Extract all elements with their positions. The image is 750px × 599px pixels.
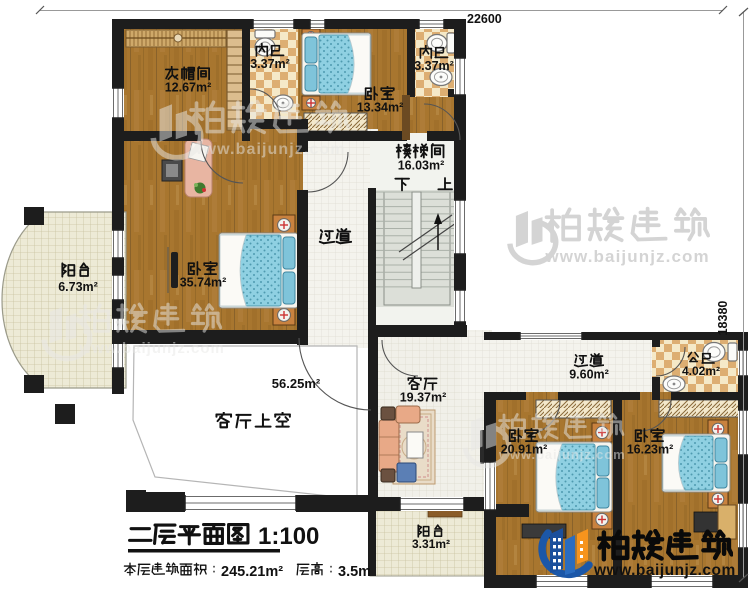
svg-text:www.baijunjz.com: www.baijunjz.com xyxy=(544,247,709,266)
svg-text:35.74m²: 35.74m² xyxy=(180,275,227,289)
svg-text:12.67m²: 12.67m² xyxy=(165,80,212,94)
svg-text:3.31m²: 3.31m² xyxy=(412,537,450,551)
svg-text:www.baijunjz.com: www.baijunjz.com xyxy=(78,340,224,357)
svg-text:16.03m²: 16.03m² xyxy=(398,158,445,172)
svg-text:19.37m²: 19.37m² xyxy=(400,390,447,404)
svg-text:www.baijunjz.com: www.baijunjz.com xyxy=(189,141,346,158)
svg-text:245.21m²: 245.21m² xyxy=(221,564,283,580)
svg-text:3.37m²: 3.37m² xyxy=(414,59,454,73)
svg-text:www.baijunjz.com: www.baijunjz.com xyxy=(593,562,736,579)
svg-text:1:100: 1:100 xyxy=(258,523,319,550)
svg-text:13.34m²: 13.34m² xyxy=(357,100,404,114)
svg-text:4.02m²: 4.02m² xyxy=(682,364,720,378)
svg-text:3.37m²: 3.37m² xyxy=(250,57,290,71)
svg-text:9.60m²: 9.60m² xyxy=(569,367,609,381)
svg-text:6.73m²: 6.73m² xyxy=(58,280,98,294)
svg-text:18380: 18380 xyxy=(716,301,730,336)
svg-text:16.23m²: 16.23m² xyxy=(627,442,674,456)
svg-text:20.91m²: 20.91m² xyxy=(501,442,548,456)
svg-text:56.25m²: 56.25m² xyxy=(272,376,321,391)
svg-text:3.5m: 3.5m xyxy=(338,564,371,580)
svg-text:22600: 22600 xyxy=(467,12,502,26)
